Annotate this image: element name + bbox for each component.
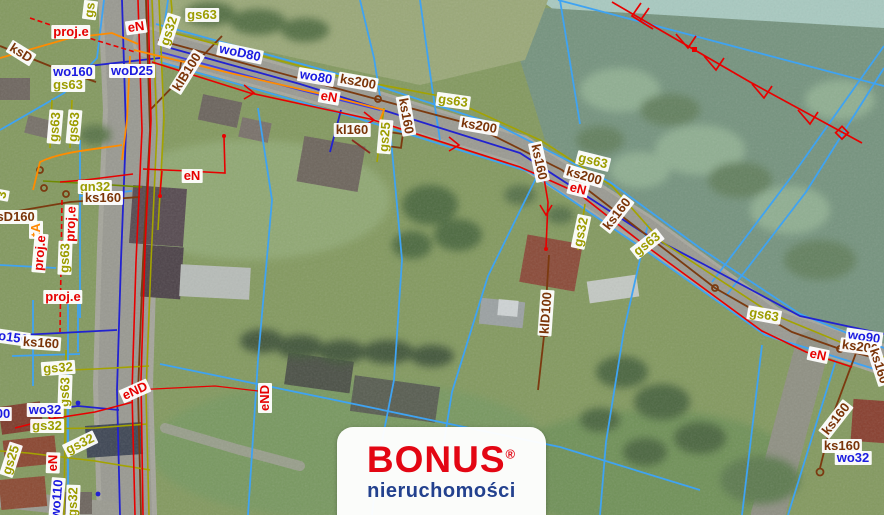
map-viewport[interactable]: gseNproj.eksDwo160gs63woD25klB100gs63gs3…	[0, 0, 884, 515]
watermark-logo: BONUS® nieruchomości	[337, 427, 546, 515]
registered-mark-icon: ®	[506, 447, 517, 462]
watermark-subtitle: nieruchomości	[367, 480, 516, 503]
watermark-brand: BONUS®	[367, 441, 516, 478]
